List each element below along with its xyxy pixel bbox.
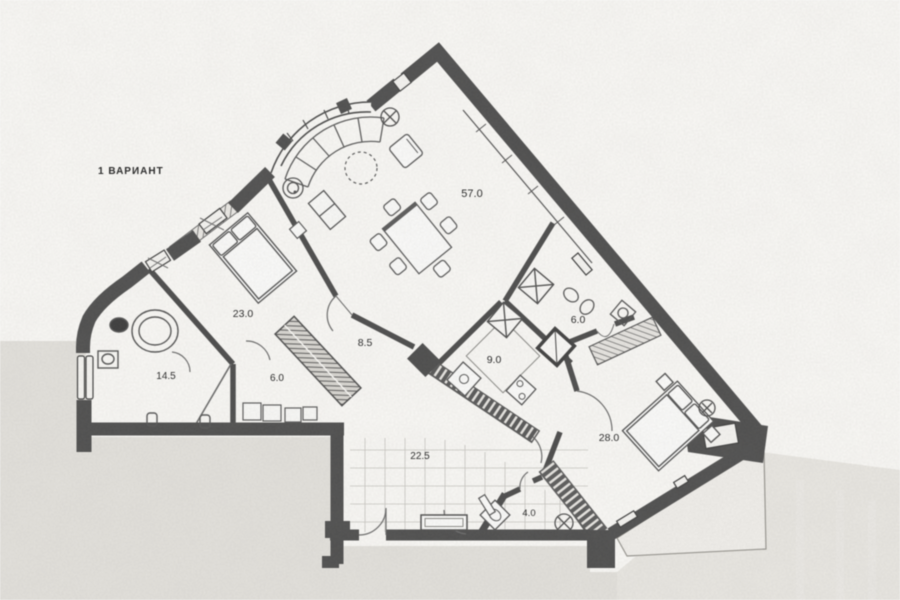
svg-text:28.0: 28.0 <box>599 432 620 444</box>
svg-text:9.0: 9.0 <box>487 354 502 366</box>
svg-text:6.0: 6.0 <box>571 314 586 326</box>
svg-text:57.0: 57.0 <box>461 188 482 200</box>
svg-text:22.5: 22.5 <box>410 451 430 462</box>
svg-text:23.0: 23.0 <box>233 308 254 320</box>
svg-text:1 ВАРИАНТ: 1 ВАРИАНТ <box>98 166 164 177</box>
svg-text:4.0: 4.0 <box>522 508 535 519</box>
svg-text:8.5: 8.5 <box>358 337 373 349</box>
svg-text:14.5: 14.5 <box>156 371 176 382</box>
svg-text:6.0: 6.0 <box>270 373 284 384</box>
